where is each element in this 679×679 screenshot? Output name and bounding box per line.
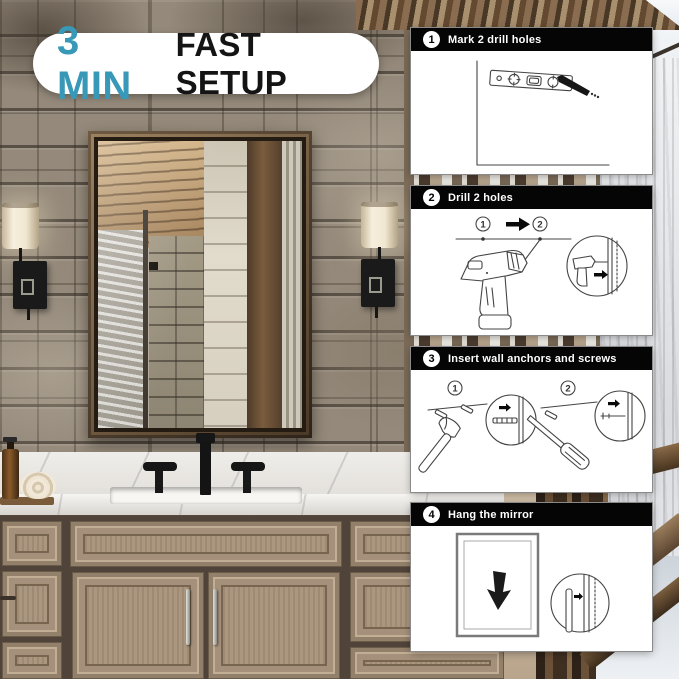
screw-wall-inset	[595, 391, 645, 441]
step-number-badge: 1	[423, 31, 440, 48]
glass-sheen	[98, 141, 302, 428]
step-3-header: 3 Insert wall anchors and screws	[411, 347, 652, 370]
step-4-header: 4 Hang the mirror	[411, 503, 652, 526]
wall-anchor-icon	[435, 404, 473, 418]
step-1-header: 1 Mark 2 drill holes	[411, 28, 652, 51]
mirror-frame-molding	[91, 134, 309, 435]
drill-wall-inset	[567, 236, 627, 296]
mirror-reflection	[98, 141, 302, 428]
drawer-panel	[2, 571, 62, 637]
product-image: 3 MIN FAST SETUP 1 Mark 2 drill holes	[0, 0, 679, 679]
hammer-icon	[411, 414, 462, 475]
faucet-handle-left	[143, 462, 177, 471]
step-number-badge: 4	[423, 506, 440, 523]
cabinet-door-right	[208, 572, 340, 679]
cabinet-door-left	[72, 572, 204, 679]
door-handle-left	[186, 589, 190, 645]
step-title: Insert wall anchors and screws	[448, 353, 617, 365]
svg-text:2: 2	[537, 219, 542, 230]
drill-icon	[461, 241, 539, 329]
step-panel-2: 2 Drill 2 holes 1 2	[411, 186, 652, 335]
step-title: Mark 2 drill holes	[448, 34, 541, 46]
drawer-panel	[2, 642, 62, 679]
step-title: Hang the mirror	[448, 509, 534, 521]
sconce-rod	[27, 308, 30, 320]
bracket-wall-inset	[551, 574, 609, 632]
step-4-illustration	[411, 526, 652, 650]
soap-bottle	[2, 449, 19, 499]
rolled-towel	[20, 472, 56, 499]
mirror-frame-inner	[94, 137, 306, 432]
step-3-illustration: 1	[411, 370, 652, 491]
sconce-backplate	[361, 259, 395, 307]
badge-label-text: FAST SETUP	[176, 26, 379, 102]
sconce-shade	[361, 202, 398, 248]
drawer-panel	[70, 521, 342, 567]
faucet-handle-right-stem	[243, 471, 251, 493]
drawer-panel	[350, 647, 504, 679]
right-arrow-icon	[506, 218, 530, 232]
drawer-handle	[0, 596, 16, 600]
drawer-panel	[2, 521, 62, 566]
step-panel-3: 3 Insert wall anchors and screws 1	[411, 347, 652, 492]
wall-anchor-icon	[545, 410, 557, 419]
fast-setup-badge: 3 MIN FAST SETUP	[33, 33, 379, 94]
svg-text:1: 1	[452, 383, 458, 394]
sconce-shade	[2, 203, 39, 249]
step-number-badge: 3	[423, 350, 440, 367]
door-handle-right	[213, 589, 217, 645]
marker-2-badge: 2	[561, 381, 575, 395]
marker-2-badge: 2	[533, 217, 547, 231]
faucet-handle-right	[231, 462, 265, 471]
faucet-spout	[200, 441, 211, 495]
faucet-handle-left-stem	[155, 471, 163, 493]
badge-time-text: 3 MIN	[57, 19, 165, 109]
screwdriver-icon	[525, 413, 592, 472]
step-number-badge: 2	[423, 189, 440, 206]
sconce-backplate	[13, 261, 47, 309]
step-1-illustration	[411, 51, 652, 173]
wall-mirror	[88, 131, 312, 438]
step-panel-4: 4 Hang the mirror	[411, 503, 652, 651]
wood-ceiling-beams	[356, 0, 679, 30]
step-2-header: 2 Drill 2 holes	[411, 186, 652, 209]
sconce-rod	[375, 306, 378, 318]
step-panel-1: 1 Mark 2 drill holes	[411, 28, 652, 174]
marker-1-badge: 1	[476, 217, 490, 231]
step-2-illustration: 1 2	[411, 209, 652, 334]
svg-text:1: 1	[480, 219, 486, 230]
step-title: Drill 2 holes	[448, 192, 513, 204]
svg-text:2: 2	[565, 383, 570, 394]
marker-1-badge: 1	[448, 381, 462, 395]
